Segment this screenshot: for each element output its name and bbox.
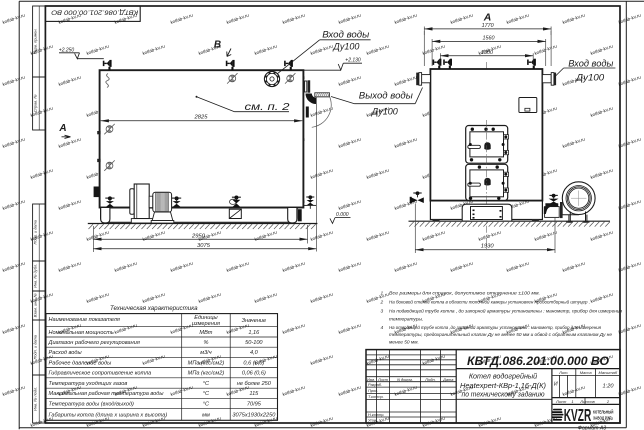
svg-text:не более 250: не более 250 — [237, 381, 272, 387]
svg-text:Температура воды (вход/выход): Температура воды (вход/выход) — [49, 401, 135, 407]
svg-text:Масса: Масса — [580, 370, 593, 375]
svg-text:Н.контр.: Н.контр. — [368, 412, 384, 417]
svg-text:2950: 2950 — [191, 233, 206, 239]
svg-text:1560: 1560 — [483, 36, 495, 42]
svg-text:3: 3 — [380, 308, 383, 314]
svg-text:КВТД.086.201.00.000 ВО: КВТД.086.201.00.000 ВО — [51, 9, 139, 16]
svg-text:Подп. и дата: Подп. и дата — [32, 219, 37, 244]
svg-text:Масштаб: Масштаб — [598, 370, 617, 375]
svg-text:На отводящей трубе котла ,до з: На отводящей трубе котла ,до запорной ар… — [389, 324, 601, 331]
svg-text:Значение: Значение — [242, 318, 267, 324]
svg-text:менее 50 мм.: менее 50 мм. — [389, 339, 419, 345]
svg-text:Дата: Дата — [442, 377, 454, 382]
svg-text:Температура уходящих газов: Температура уходящих газов — [49, 381, 128, 387]
svg-text:Формат А3: Формат А3 — [578, 425, 606, 430]
svg-text:1: 1 — [571, 399, 573, 404]
svg-text:KVZR: KVZR — [564, 405, 592, 425]
svg-text:2: 2 — [379, 299, 383, 305]
svg-text:ЗАВОД РЭП: ЗАВОД РЭП — [593, 415, 612, 420]
svg-text:%: % — [203, 340, 208, 346]
svg-text:°С: °С — [203, 381, 210, 387]
svg-text:мм: мм — [202, 412, 210, 418]
svg-text:1930: 1930 — [481, 243, 495, 249]
svg-text:Инв. № дубл.: Инв. № дубл. — [32, 264, 37, 288]
svg-text:Рабочее давление воды: Рабочее давление воды — [49, 360, 112, 366]
svg-text:КВТД.086.201.00.000 ВО: КВТД.086.201.00.000 ВО — [467, 354, 609, 368]
svg-text:Т.контр.: Т.контр. — [368, 394, 384, 399]
svg-text:Инв. № подл.: Инв. № подл. — [32, 387, 37, 411]
svg-text:°С: °С — [203, 401, 210, 407]
svg-text:4,0: 4,0 — [250, 350, 259, 356]
svg-text:Ду100: Ду100 — [332, 42, 360, 53]
svg-text:Наименование показателя: Наименование показателя — [49, 317, 120, 323]
svg-text:Ду100: Ду100 — [371, 107, 399, 118]
svg-text:Все размеры для справок, допус: Все размеры для справок, допустимое откл… — [389, 290, 540, 296]
svg-text:температуры.: температуры. — [389, 318, 423, 323]
svg-text:температуры, предохранительный: температуры, предохранительный клапан Ду… — [389, 331, 612, 338]
svg-text:КОТЕЛЬНЫЙ: КОТЕЛЬНЫЙ — [593, 410, 614, 415]
svg-text:0,06 (0,6): 0,06 (0,6) — [242, 371, 266, 377]
svg-text:Максимальная рабочая температу: Максимальная рабочая температура воды — [49, 391, 164, 397]
svg-text:3075х1930х2250: 3075х1930х2250 — [232, 412, 276, 418]
svg-text:На боковой стенке котла в обла: На боковой стенке котла в области топочн… — [389, 298, 590, 305]
svg-text:1: 1 — [380, 290, 383, 296]
svg-text:И: И — [554, 382, 558, 388]
svg-text:измерения: измерения — [192, 321, 220, 327]
svg-text:1,16: 1,16 — [248, 330, 260, 336]
svg-text:Габариты котла (длина х ширина: Габариты котла (длина х ширина х высота) — [49, 412, 168, 418]
svg-text:м3/ч: м3/ч — [200, 350, 211, 356]
svg-text:МПа (кгс/см2): МПа (кгс/см2) — [188, 360, 225, 366]
svg-text:см. п. 2: см. п. 2 — [245, 102, 291, 113]
svg-text:Гидравлическое сопротивление к: Гидравлическое сопротивление котла — [49, 371, 152, 377]
svg-text:Номинальная мощность: Номинальная мощность — [49, 330, 114, 336]
svg-text:Расход воды: Расход воды — [49, 350, 82, 356]
svg-text:Утв.: Утв. — [368, 418, 377, 423]
svg-text:Котел водогрейный: Котел водогрейный — [469, 372, 537, 381]
svg-text:1770: 1770 — [482, 23, 494, 29]
svg-text:Подп. и дата: Подп. и дата — [32, 334, 37, 359]
svg-text:1300: 1300 — [481, 50, 493, 56]
svg-text:МВт: МВт — [199, 330, 212, 336]
svg-text:На подводящей трубе котла ,: На подводящей трубе котла , до запорной … — [389, 307, 622, 314]
svg-text:70/95: 70/95 — [247, 401, 262, 407]
svg-text:МПа (кгс/см2): МПа (кгс/см2) — [188, 371, 225, 377]
svg-text:1:20: 1:20 — [603, 384, 615, 390]
svg-text:Перв. примен.: Перв. примен. — [32, 28, 37, 54]
svg-text:Лит.: Лит. — [558, 370, 568, 375]
svg-text:по техническому заданию: по техническому заданию — [462, 390, 546, 399]
svg-text:°С: °С — [203, 391, 210, 397]
svg-text:Техническая характеристика: Техническая характеристика — [110, 305, 198, 312]
svg-text:3075: 3075 — [197, 243, 211, 249]
svg-text:0,6 (6,0): 0,6 (6,0) — [243, 360, 264, 366]
svg-text:N докум.: N докум. — [397, 377, 413, 382]
svg-text:Справ. №: Справ. № — [32, 94, 37, 112]
svg-text:Диапазон рабочего регулировани: Диапазон рабочего регулирования — [48, 340, 140, 346]
svg-text:Подп.: Подп. — [425, 377, 435, 382]
svg-text:Листов: Листов — [579, 399, 595, 404]
svg-text:50-100: 50-100 — [245, 340, 263, 346]
svg-text:Пров.: Пров. — [368, 388, 378, 393]
svg-text:115: 115 — [249, 391, 259, 397]
svg-text:А: А — [483, 12, 492, 24]
svg-text:Взам. инв. №: Взам. инв. № — [32, 292, 37, 317]
svg-text:4: 4 — [380, 325, 383, 331]
svg-text:Вход воды: Вход воды — [322, 30, 369, 41]
svg-text:Разраб.: Разраб. — [368, 382, 382, 387]
svg-text:2825: 2825 — [194, 115, 209, 121]
svg-text:А: А — [58, 123, 66, 134]
svg-text:Лист: Лист — [555, 399, 567, 404]
svg-text:Ду100: Ду100 — [575, 73, 605, 84]
svg-text:В: В — [214, 40, 221, 51]
svg-text:Выход воды: Выход воды — [359, 91, 413, 102]
